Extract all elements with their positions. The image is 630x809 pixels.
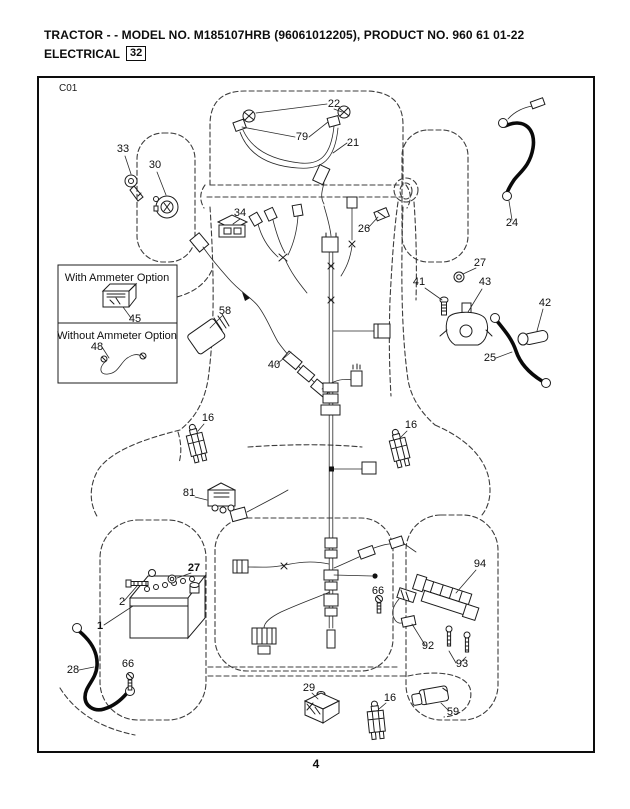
part-label-33: 33 <box>117 143 129 155</box>
exploded-parts-diagram: 2279213330342624274143422558454840161681… <box>0 0 630 809</box>
part-label-94: 94 <box>474 558 486 570</box>
screw-66-right <box>376 596 383 614</box>
battery-1 <box>130 570 205 639</box>
part-label-27-solenoid: 27 <box>474 257 486 269</box>
part-label-58: 58 <box>219 305 231 317</box>
seat-area-wiring <box>230 490 416 654</box>
part-label-66-left: 66 <box>122 658 134 670</box>
part-label-79: 79 <box>296 131 308 143</box>
part-label-41: 41 <box>413 276 425 288</box>
battery-cable-24 <box>499 98 545 201</box>
part-label-2: 2 <box>119 596 125 608</box>
interlock-switch-16-bottom <box>366 700 386 739</box>
hood-outline <box>201 91 411 208</box>
relay-module-59 <box>411 686 449 707</box>
nut-27-battery <box>168 575 176 583</box>
part-label-24: 24 <box>506 217 518 229</box>
part-label-25: 25 <box>484 352 496 364</box>
dash-panel-right-outline <box>402 130 468 262</box>
interlock-switch-16-left <box>184 423 209 464</box>
part-label-21: 21 <box>347 137 359 149</box>
part-label-opt-without: Without Ammeter Option <box>57 330 177 342</box>
part-label-45: 45 <box>129 313 141 325</box>
terminal-boot-42 <box>518 330 549 346</box>
part-label-opt-with: With Ammeter Option <box>65 272 170 284</box>
part-label-40: 40 <box>268 359 280 371</box>
part-label-27-battery: 27 <box>188 562 200 574</box>
connector-92 <box>393 588 416 627</box>
part-label-16-bottom: 16 <box>384 692 396 704</box>
part-label-30: 30 <box>149 159 161 171</box>
part-label-28: 28 <box>67 664 79 676</box>
nut-27 <box>454 272 464 282</box>
parts-manual-page: TRACTOR - - MODEL NO. M185107HRB (960610… <box>0 0 630 809</box>
part-label-1: 1 <box>97 620 103 632</box>
part-label-16-right: 16 <box>405 419 417 431</box>
solenoid-43 <box>440 303 492 345</box>
part-label-48: 48 <box>91 341 103 353</box>
ground-cable-25 <box>491 314 551 388</box>
part-label-92: 92 <box>422 640 434 652</box>
part-label-26: 26 <box>358 223 370 235</box>
center-harness <box>321 206 390 648</box>
part-label-22: 22 <box>328 98 340 110</box>
part-label-66-right: 66 <box>372 585 384 597</box>
ignition-key <box>125 175 143 201</box>
screws-93 <box>446 626 470 652</box>
hour-meter-58 <box>187 314 229 355</box>
seat-switch-29 <box>305 692 339 724</box>
part-label-16-left: 16 <box>202 412 214 424</box>
part-label-34: 34 <box>234 207 246 219</box>
part-label-29: 29 <box>303 682 315 694</box>
fuse-assembly-94 <box>409 574 483 620</box>
part-label-42: 42 <box>539 297 551 309</box>
interlock-switch-16-right <box>387 428 412 469</box>
part-label-93: 93 <box>456 658 468 670</box>
part-label-81: 81 <box>183 487 195 499</box>
ignition-switch <box>154 196 179 218</box>
relay-81 <box>208 483 235 513</box>
headlight-harness <box>233 106 350 204</box>
part-label-59: 59 <box>447 706 459 718</box>
part-label-43: 43 <box>479 276 491 288</box>
